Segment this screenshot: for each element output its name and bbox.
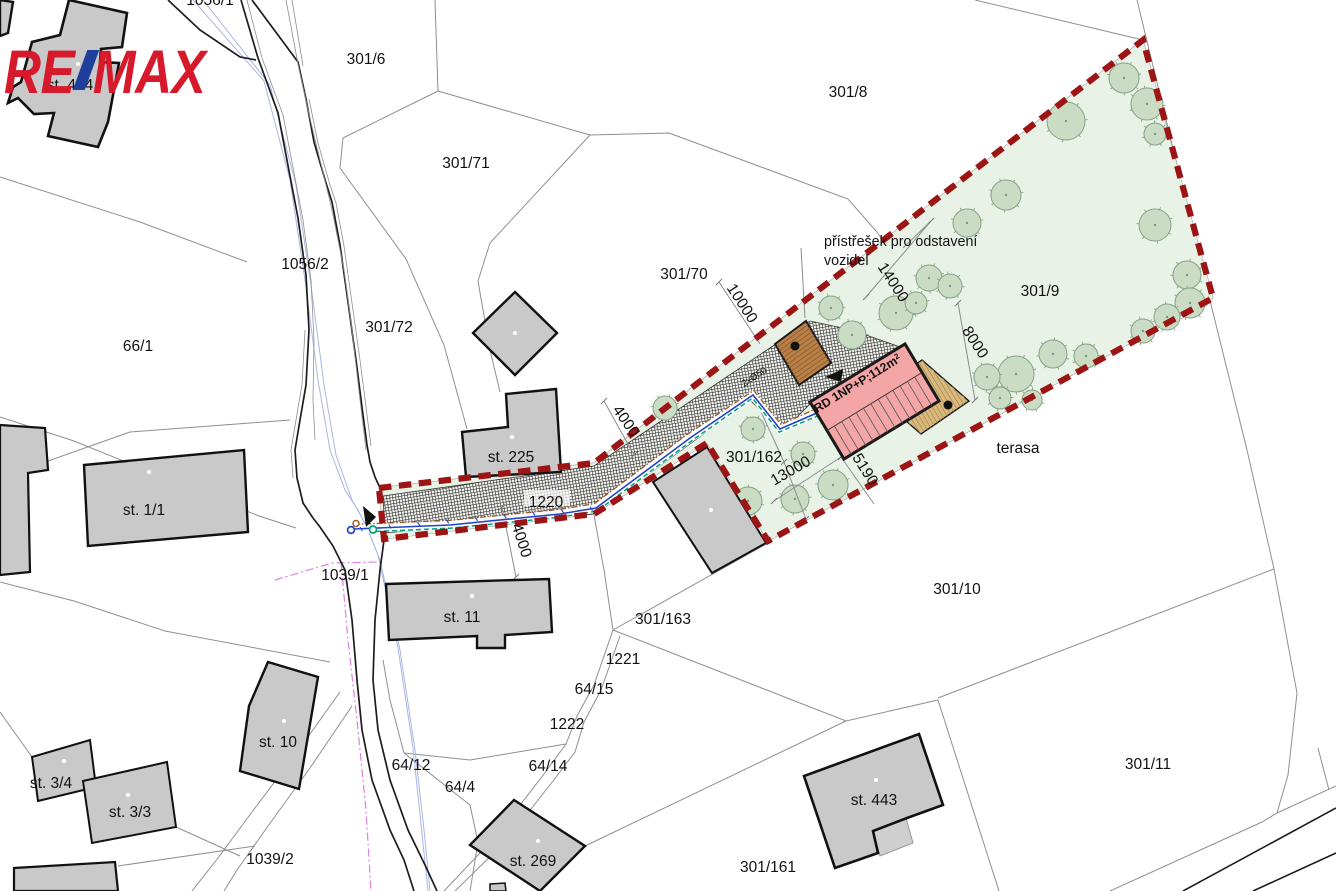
svg-text:301/72: 301/72 xyxy=(365,319,412,336)
svg-text:301/10: 301/10 xyxy=(933,581,981,598)
svg-text:st. 225: st. 225 xyxy=(488,449,535,466)
svg-text:st. 10: st. 10 xyxy=(259,734,297,751)
svg-text:st. 269: st. 269 xyxy=(510,853,557,870)
svg-text:1039/1: 1039/1 xyxy=(321,567,368,584)
svg-text:64/15: 64/15 xyxy=(575,681,614,698)
svg-text:terasa: terasa xyxy=(996,440,1039,457)
svg-text:1056/2: 1056/2 xyxy=(281,256,328,273)
svg-text:1221: 1221 xyxy=(606,651,640,668)
svg-text:301/71: 301/71 xyxy=(442,155,489,172)
svg-text:64/4: 64/4 xyxy=(445,779,476,796)
svg-text:st. 11: st. 11 xyxy=(444,609,481,626)
svg-text:st. 3/3: st. 3/3 xyxy=(109,804,151,821)
svg-text:st. 1/1: st. 1/1 xyxy=(123,502,165,519)
svg-text:st. 3/4: st. 3/4 xyxy=(30,775,73,792)
svg-text:301/9: 301/9 xyxy=(1021,283,1060,300)
svg-text:301/8: 301/8 xyxy=(829,84,868,101)
svg-text:301/11: 301/11 xyxy=(1125,756,1171,773)
svg-text:1222: 1222 xyxy=(550,716,584,733)
svg-text:301/6: 301/6 xyxy=(347,51,386,68)
svg-text:1039/2: 1039/2 xyxy=(246,851,293,868)
svg-text:301/162: 301/162 xyxy=(726,449,782,466)
svg-text:st. 443: st. 443 xyxy=(851,792,898,809)
svg-text:301/163: 301/163 xyxy=(635,611,691,628)
svg-text:přístřešek pro odstavení: přístřešek pro odstavení xyxy=(824,234,977,250)
svg-text:1056/1: 1056/1 xyxy=(186,0,233,9)
svg-text:vozidel: vozidel xyxy=(824,253,869,269)
svg-text:301/161: 301/161 xyxy=(740,859,796,876)
svg-text:66/1: 66/1 xyxy=(123,338,153,355)
svg-text:64/14: 64/14 xyxy=(529,758,568,775)
svg-text:64/12: 64/12 xyxy=(392,757,431,774)
svg-text:301/70: 301/70 xyxy=(660,266,708,283)
svg-text:1220: 1220 xyxy=(529,494,564,511)
